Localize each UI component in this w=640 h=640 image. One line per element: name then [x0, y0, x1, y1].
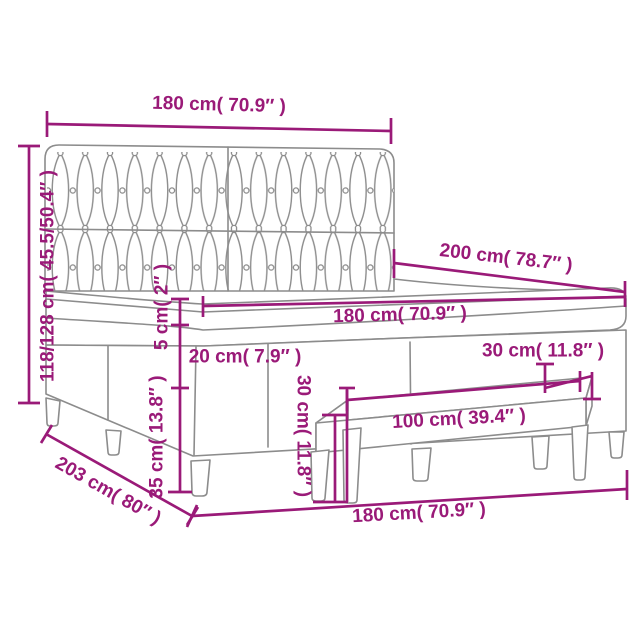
headboard-tufting	[47, 152, 394, 291]
bench-back-leg	[412, 448, 431, 481]
dim-label-headboard-height: 118/128 cm( 45.5/50.4″ )	[38, 170, 59, 382]
dim-label-bench-height: 30 cm( 11.8″ )	[293, 375, 314, 497]
headboard	[45, 145, 394, 291]
dim-label-base-height: 35 cm( 13.8″ )	[147, 375, 168, 498]
bench-leg	[572, 425, 588, 480]
dim-label-bench-depth: 30 cm( 11.8″ )	[482, 341, 604, 362]
dim-label-bed-width-bottom: 180 cm( 70.9″ )	[352, 499, 487, 527]
bed-leg	[191, 460, 210, 496]
dim-label-mattress-thickness: 20 cm( 7.9″ )	[189, 347, 302, 368]
dim-bed-width-top	[47, 111, 391, 144]
dim-label-bed-width-top: 180 cm( 70.9″ )	[152, 93, 286, 117]
bed-leg	[46, 398, 60, 426]
bench-back-leg	[532, 436, 549, 469]
dim-label-topper-thickness: 5 cm( 2″ )	[152, 264, 173, 350]
dim-label-mattress-width: 180 cm( 70.9″ )	[333, 303, 467, 327]
bed-leg	[609, 432, 624, 458]
bed-leg	[106, 430, 121, 455]
diagram-canvas: 180 cm( 70.9″ ) 118/128 cm( 45.5/50.4″ )…	[0, 0, 640, 640]
dimension-diagram: 180 cm( 70.9″ ) 118/128 cm( 45.5/50.4″ )…	[0, 0, 640, 640]
